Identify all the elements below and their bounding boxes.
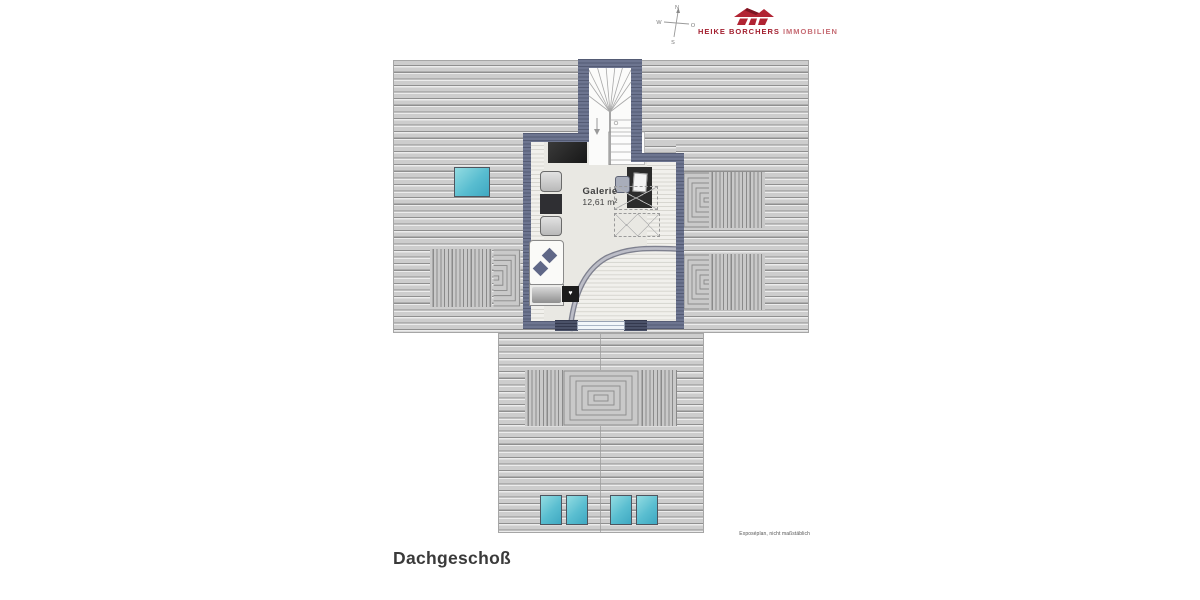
hip-concentric-hatch	[563, 370, 639, 426]
hip-slope-hatch	[639, 370, 677, 426]
logo-text: HEIKE BORCHERSIMMOBILIEN	[698, 27, 814, 36]
logo-suffix: IMMOBILIEN	[783, 27, 838, 36]
room-label-block: Galerie 12,61 m²	[552, 187, 648, 207]
logo-house-icon	[732, 7, 776, 25]
logo: HEIKE BORCHERSIMMOBILIEN	[698, 6, 814, 38]
dormer-slope-hatch	[709, 172, 765, 228]
room-area: 12,61 m²	[552, 197, 648, 207]
bench	[529, 284, 564, 306]
skylight-window	[454, 167, 490, 197]
dormer-hip-hatch	[683, 172, 709, 228]
wall-segment	[523, 133, 589, 142]
room-name: Galerie	[552, 187, 648, 197]
compass-o: O	[691, 23, 696, 29]
roof-ridge-line	[600, 334, 601, 532]
floorplan-canvas: N W O S // bind compass letters from dat…	[0, 0, 1200, 600]
armchair	[540, 216, 562, 236]
roof-dormer-right-upper	[683, 172, 765, 228]
skylight-window	[540, 495, 562, 525]
window-post	[555, 320, 578, 331]
roof-dormer-right-lower	[683, 254, 765, 310]
page-title: Dachgeschoß	[393, 548, 511, 569]
skylight-window	[636, 495, 658, 525]
compass-rose-icon: N W O S	[650, 1, 702, 47]
roof-dormer-left	[430, 249, 522, 307]
wall-segment	[578, 59, 589, 142]
dormer-slope-hatch	[709, 254, 765, 310]
dashed-cell	[638, 214, 659, 236]
compass-w: W	[656, 20, 662, 26]
window-post	[624, 320, 647, 331]
skylight-window	[610, 495, 632, 525]
sideboard	[548, 142, 587, 163]
gallery-window	[577, 321, 625, 330]
headroom-dashed-box	[614, 213, 660, 237]
dormer-hip-hatch	[492, 249, 522, 307]
wall-segment	[631, 59, 642, 162]
hip-slope-hatch	[525, 370, 563, 426]
dashed-cell	[615, 214, 638, 236]
plan-disclaimer: Exposéplan, nicht maßstäblich	[640, 531, 810, 537]
compass-n: N	[675, 5, 679, 11]
bench-cushion	[532, 287, 561, 303]
lower-wing-roof	[498, 333, 704, 533]
wall-segment	[647, 321, 684, 329]
dormer-slope-hatch	[430, 249, 492, 307]
skylight-window	[566, 495, 588, 525]
logo-brand: HEIKE BORCHERS	[698, 27, 780, 36]
roof-hip-pattern	[525, 370, 677, 426]
compass-s: S	[671, 40, 675, 46]
wall-segment	[523, 321, 556, 329]
daybed	[529, 240, 564, 286]
wall-segment	[676, 153, 684, 329]
heart-icon: ♥	[562, 286, 579, 302]
dormer-hip-hatch	[683, 254, 709, 310]
